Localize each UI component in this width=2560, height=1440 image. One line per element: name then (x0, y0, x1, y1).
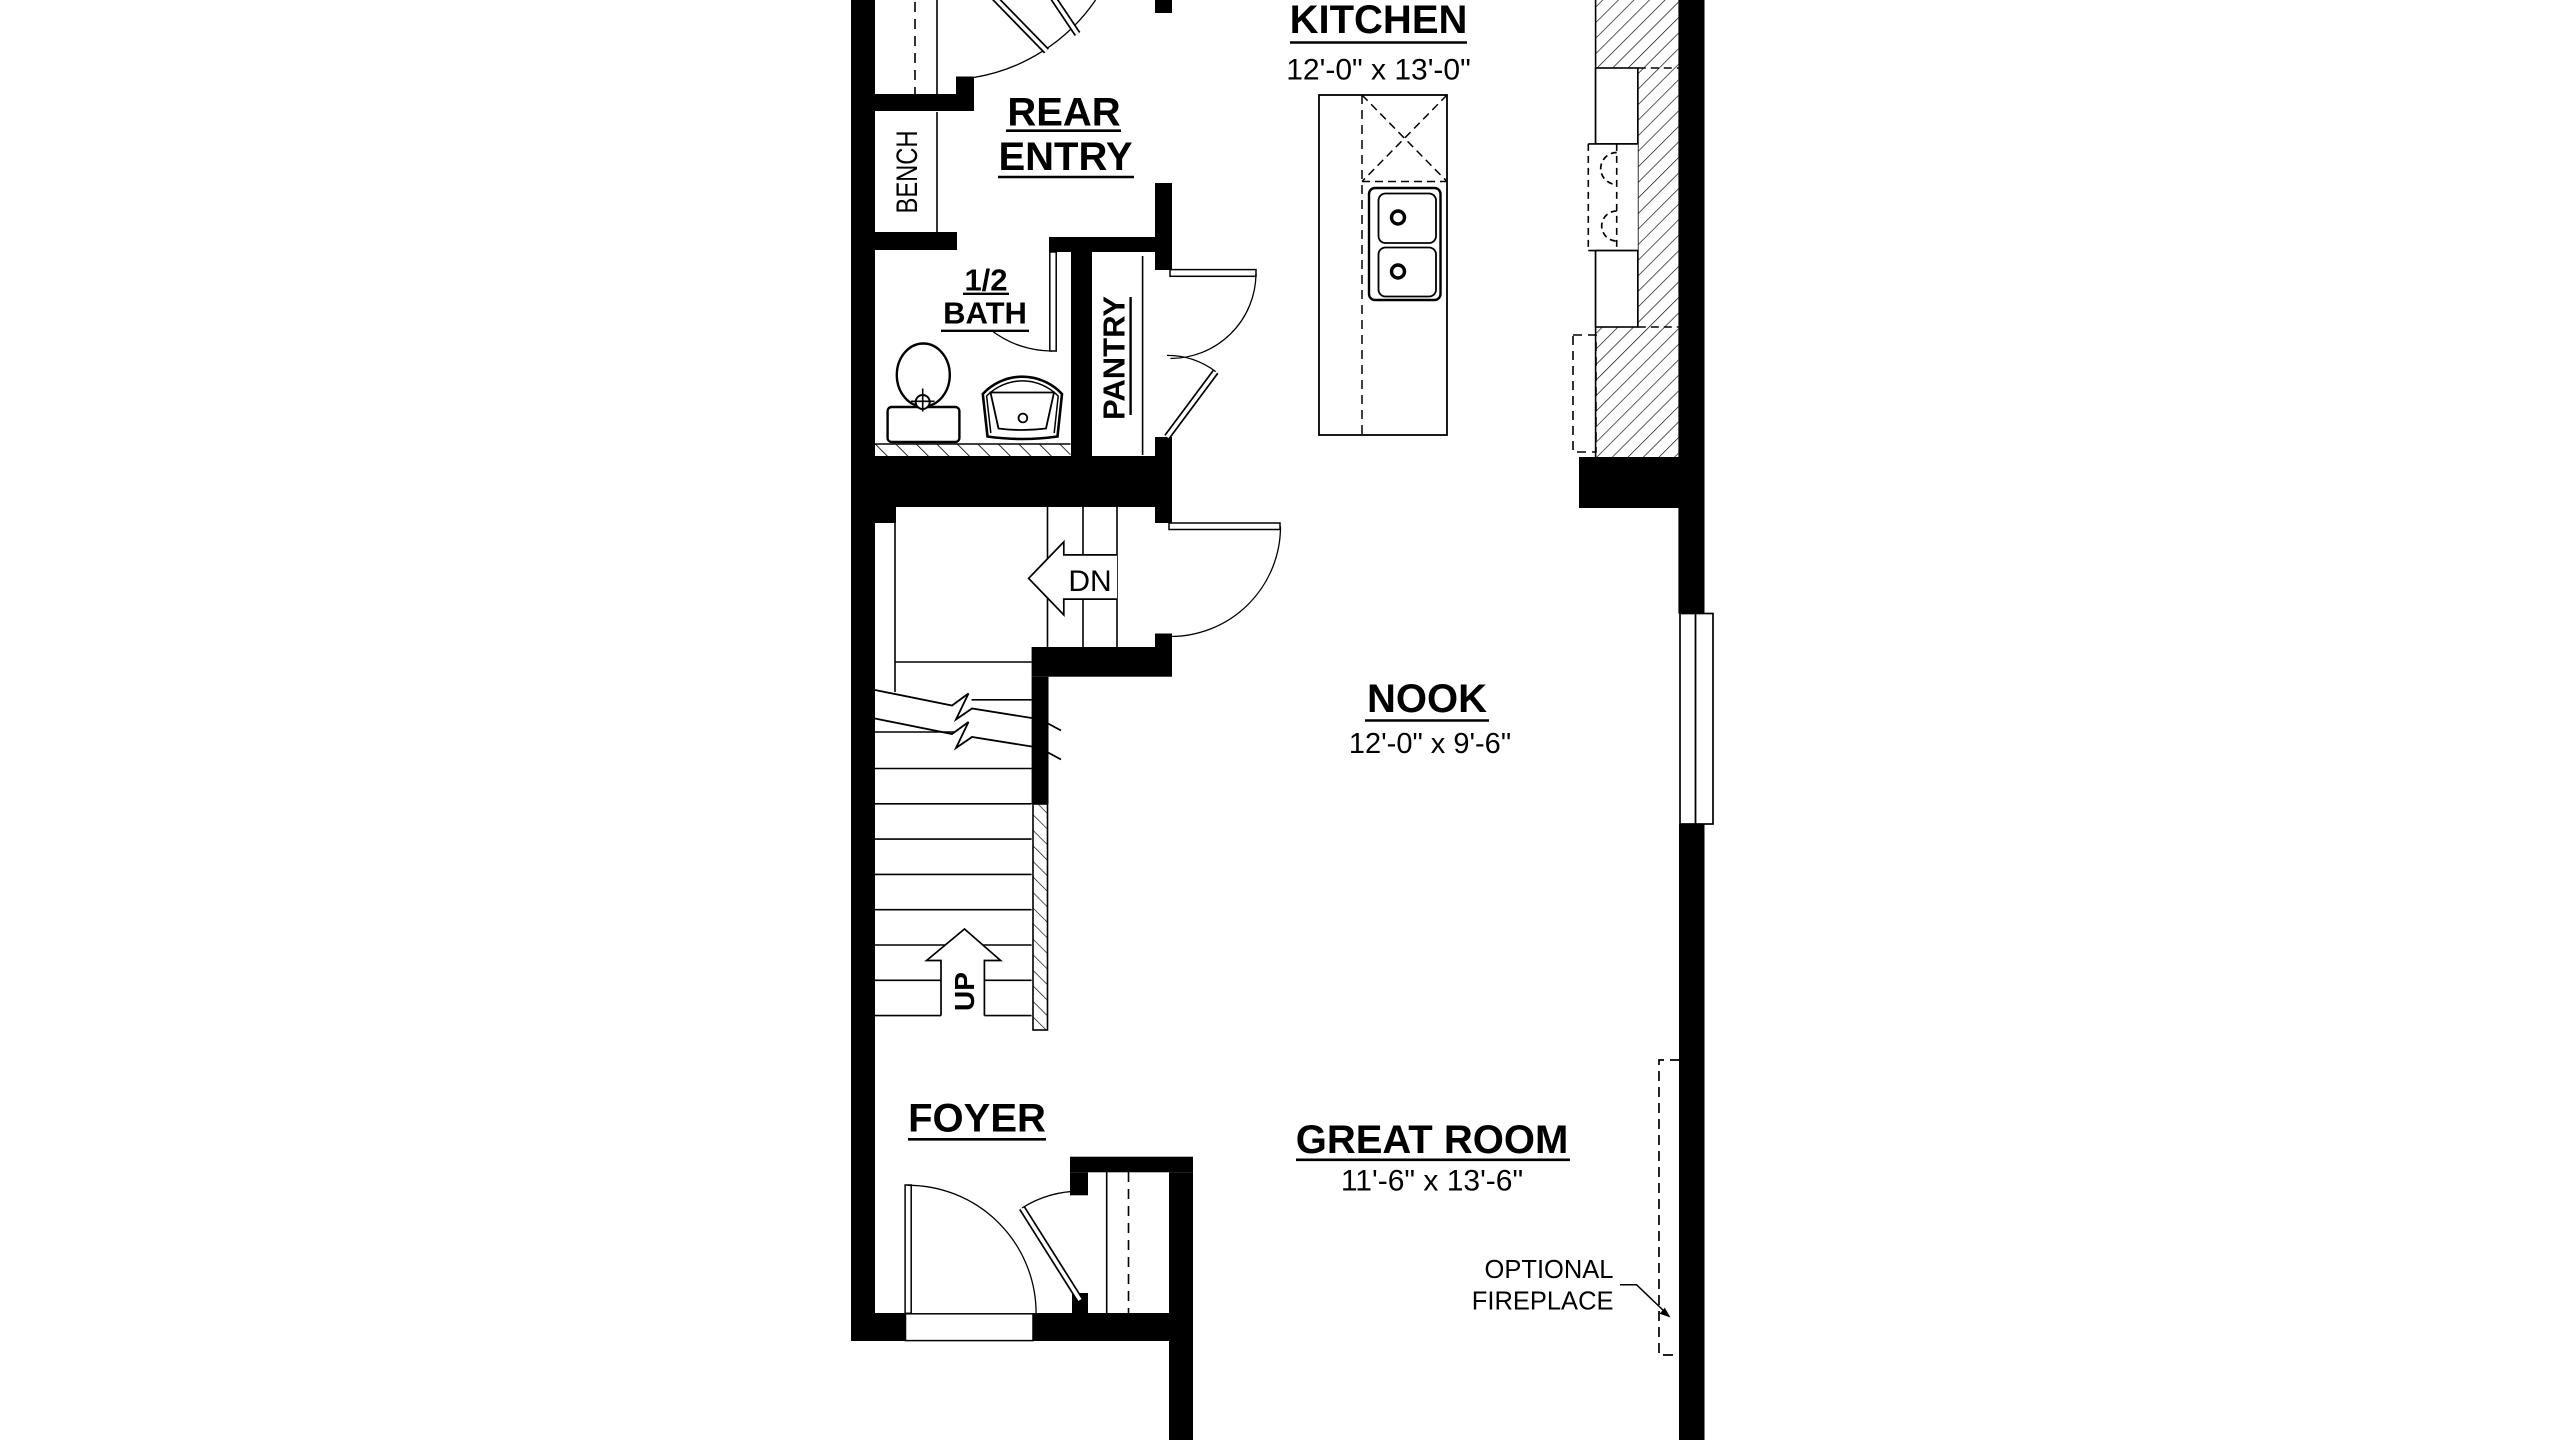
svg-text:12'-0" x 9'-6": 12'-0" x 9'-6" (1349, 728, 1511, 760)
svg-text:GREAT ROOM: GREAT ROOM (1296, 1118, 1569, 1162)
svg-text:FIREPLACE: FIREPLACE (1472, 1288, 1614, 1316)
svg-text:REAR: REAR (1007, 91, 1120, 135)
svg-text:OPTIONAL: OPTIONAL (1485, 1256, 1614, 1284)
svg-text:PANTRY: PANTRY (1097, 296, 1132, 420)
svg-text:NOOK: NOOK (1367, 677, 1487, 721)
svg-text:UP: UP (949, 972, 980, 1011)
svg-text:BATH: BATH (943, 296, 1027, 331)
svg-text:DN: DN (1068, 565, 1111, 598)
svg-text:KITCHEN: KITCHEN (1290, 0, 1468, 42)
svg-text:1/2: 1/2 (964, 263, 1007, 298)
svg-text:11'-6" x 13'-6": 11'-6" x 13'-6" (1341, 1165, 1523, 1198)
svg-text:FOYER: FOYER (908, 1097, 1046, 1141)
svg-text:BENCH: BENCH (891, 131, 924, 214)
svg-text:ENTRY: ENTRY (998, 135, 1132, 179)
svg-text:12'-0" x 13'-0": 12'-0" x 13'-0" (1286, 54, 1471, 87)
